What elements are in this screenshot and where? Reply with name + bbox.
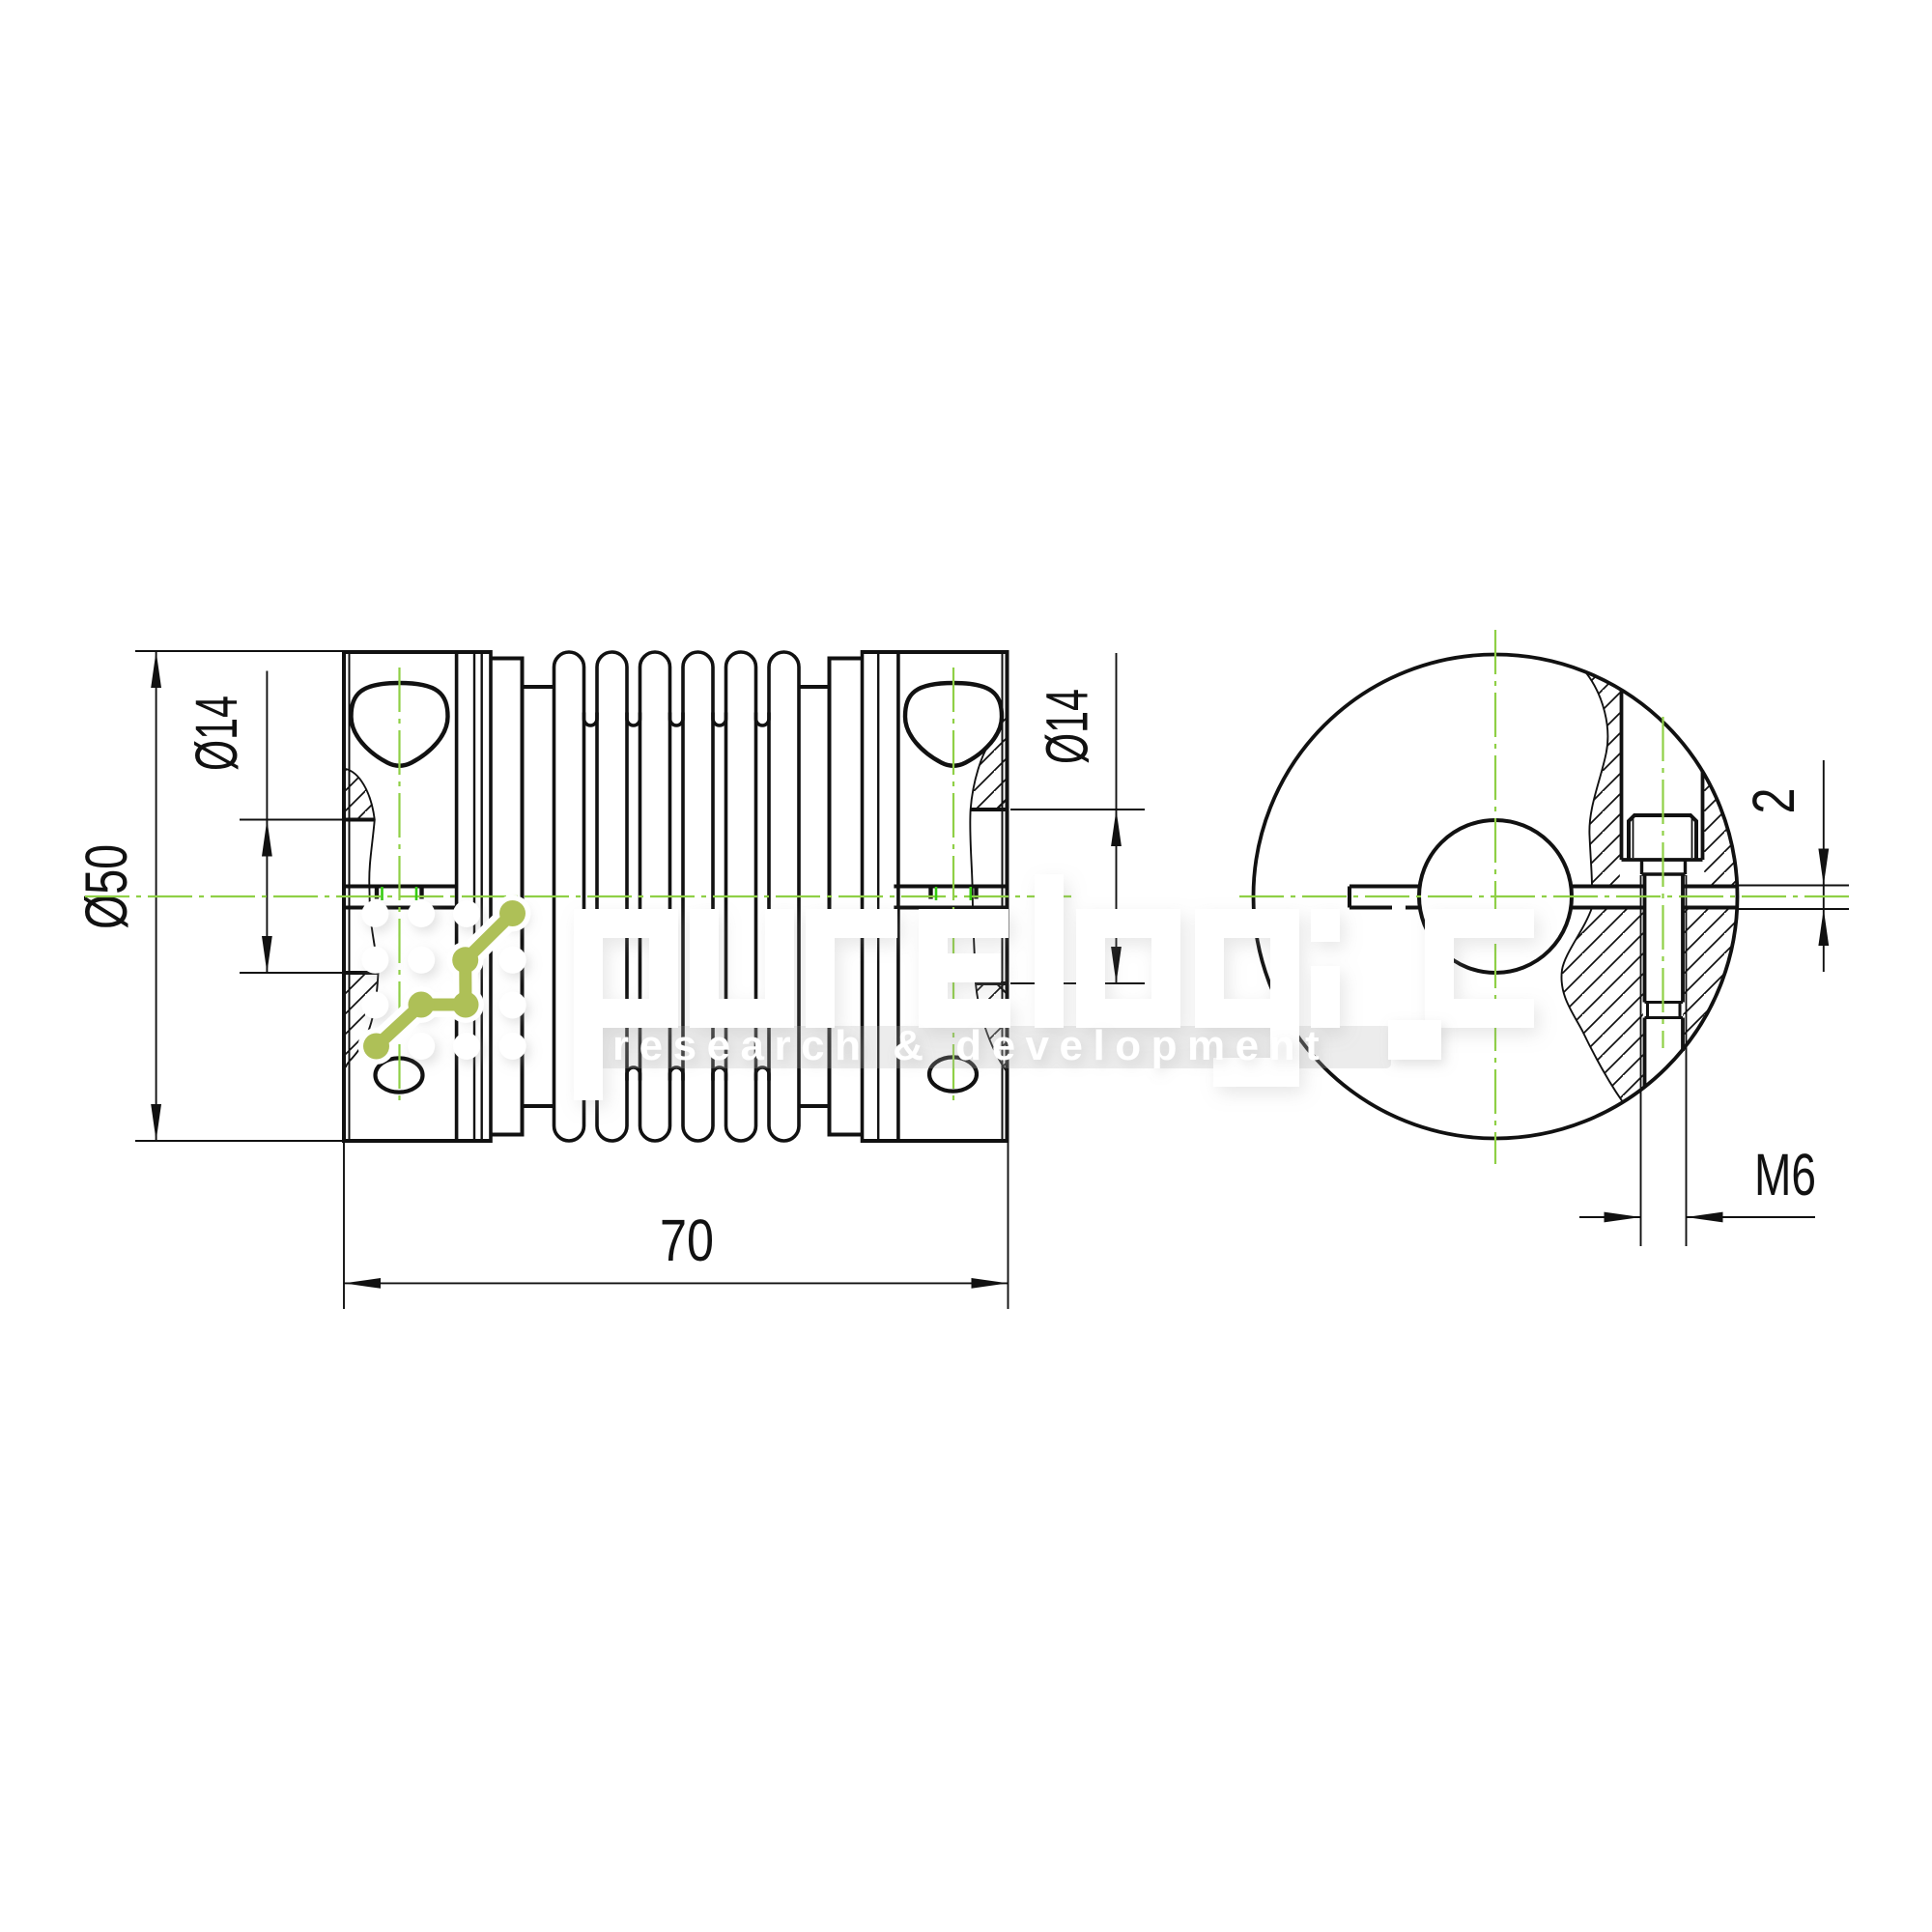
- svg-text:70: 70: [660, 1207, 714, 1273]
- svg-text:M6: M6: [1754, 1142, 1816, 1207]
- svg-text:2: 2: [1741, 788, 1806, 814]
- svg-text:Ø14: Ø14: [1035, 689, 1100, 764]
- svg-text:Ø50: Ø50: [73, 844, 139, 929]
- svg-text:Ø14: Ø14: [184, 696, 249, 771]
- svg-text:research & development: research & development: [612, 1022, 1329, 1069]
